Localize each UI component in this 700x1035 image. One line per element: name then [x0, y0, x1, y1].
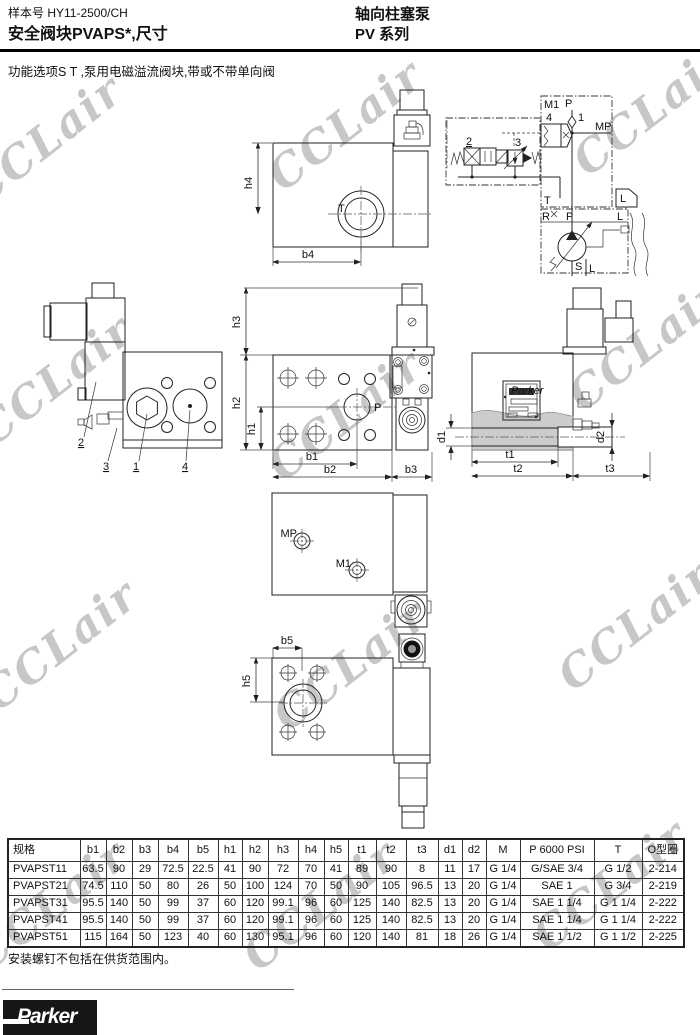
value-cell: 37 [188, 913, 218, 930]
table-header-cell: d1 [438, 839, 462, 862]
callout-2: 2 [78, 437, 84, 449]
value-cell: SAE 1 [520, 879, 594, 896]
circuit-label-3: 3 [515, 137, 521, 149]
value-cell: 140 [106, 913, 132, 930]
value-cell: G 1/4 [486, 879, 520, 896]
value-cell: 60 [324, 930, 348, 948]
value-cell: 82.5 [406, 913, 438, 930]
spec-cell: PVAPST11 [8, 862, 80, 879]
value-cell: 2-214 [642, 862, 684, 879]
table-row: PVAPST4195.51405099376012099.19660125140… [8, 913, 684, 930]
value-cell: 70 [298, 879, 324, 896]
dim-label-b1: b1 [306, 451, 318, 463]
value-cell: 125 [348, 896, 376, 913]
catalog-page: CCLair CCLair CCLair CCLair CCLair CCLai… [0, 0, 700, 1035]
circuit-label-S: S [575, 261, 582, 273]
table-header-cell: 规格 [8, 839, 80, 862]
value-cell: 50 [324, 879, 348, 896]
dim-label-h2: h2 [231, 397, 243, 409]
table-header-cell: b3 [132, 839, 158, 862]
circuit-label-1: 1 [578, 112, 584, 124]
value-cell: 26 [462, 930, 486, 948]
spec-cell: PVAPST21 [8, 879, 80, 896]
value-cell: 96 [298, 896, 324, 913]
port-label-M1: M1 [336, 558, 351, 570]
value-cell: 20 [462, 879, 486, 896]
value-cell: G 1/2 [594, 862, 642, 879]
value-cell: 50 [132, 930, 158, 948]
dim-label-b4: b4 [302, 249, 314, 261]
table-header-cell: t3 [406, 839, 438, 862]
table-header-cell: M [486, 839, 520, 862]
value-cell: SAE 1 1/4 [520, 913, 594, 930]
value-cell: 82.5 [406, 896, 438, 913]
table-row: PVAPST3195.51405099376012099.19660125140… [8, 896, 684, 913]
value-cell: G 1/4 [486, 913, 520, 930]
value-cell: 90 [106, 862, 132, 879]
value-cell: 89 [348, 862, 376, 879]
value-cell: 96 [298, 913, 324, 930]
series-name: PV 系列 [355, 23, 409, 44]
spec-cell: PVAPST41 [8, 913, 80, 930]
value-cell: 96.5 [406, 879, 438, 896]
value-cell: 140 [376, 930, 406, 948]
value-cell: G 1 1/4 [594, 913, 642, 930]
value-cell: G 1/4 [486, 930, 520, 948]
product-name: 轴向柱塞泵 [355, 3, 430, 24]
dim-label-t3: t3 [605, 463, 614, 475]
table-header-cell: T [594, 839, 642, 862]
value-cell: SAE 1 1/4 [520, 896, 594, 913]
table-header-cell: b5 [188, 839, 218, 862]
value-cell: 40 [188, 930, 218, 948]
drawing-side-section-view: Parker d1 d2 t [436, 288, 650, 481]
value-cell: 72.5 [158, 862, 188, 879]
value-cell: 110 [106, 879, 132, 896]
drawing-solenoid-side-view: 2 3 1 4 [44, 283, 222, 473]
value-cell: 74.5 [80, 879, 106, 896]
value-cell: 96 [298, 930, 324, 948]
callout-1: 1 [133, 461, 139, 473]
dim-label-h5: h5 [241, 675, 253, 687]
table-row: PVAPST1163.5902972.522.54190727041899081… [8, 862, 684, 879]
dim-label-b5: b5 [281, 635, 293, 647]
table-header-cell: h2 [242, 839, 268, 862]
value-cell: 123 [158, 930, 188, 948]
dim-label-t2: t2 [513, 463, 522, 475]
value-cell: 99.1 [268, 913, 298, 930]
table-row: PVAPST2174.51105080265010012470509010596… [8, 879, 684, 896]
value-cell: G 3/4 [594, 879, 642, 896]
value-cell: 50 [132, 913, 158, 930]
value-cell: 18 [438, 930, 462, 948]
value-cell: G 1 1/2 [594, 930, 642, 948]
table-header-cell: b1 [80, 839, 106, 862]
value-cell: 100 [242, 879, 268, 896]
table-header-cell: h1 [218, 839, 242, 862]
value-cell: 72 [268, 862, 298, 879]
value-cell: 95.1 [268, 930, 298, 948]
dim-label-h1: h1 [246, 423, 258, 435]
circuit-label-2: 2 [466, 136, 472, 148]
value-cell: 105 [376, 879, 406, 896]
value-cell: 20 [462, 913, 486, 930]
value-cell: 2-222 [642, 913, 684, 930]
dimension-table: 规格b1b2b3b4b5h1h2h3h4h5t1t2t3d1d2MP 6000 … [7, 838, 685, 948]
hydraulic-circuit-diagram: 2 3 M1 P 1 4 [446, 96, 648, 276]
header-rule [0, 49, 700, 52]
value-cell: 41 [324, 862, 348, 879]
value-cell: 2-219 [642, 879, 684, 896]
page-title: 安全阀块PVAPS*,尺寸 [8, 20, 168, 44]
table-header-cell: d2 [462, 839, 486, 862]
drawing-front-view: P h3 h2 h1 b1 b2 b3 [231, 284, 434, 482]
value-cell: 81 [406, 930, 438, 948]
table-header-cell: b4 [158, 839, 188, 862]
value-cell: 50 [132, 896, 158, 913]
value-cell: 140 [376, 896, 406, 913]
parker-logo: Parker [3, 1000, 97, 1035]
dim-label-h3: h3 [231, 316, 243, 328]
value-cell: 20 [462, 896, 486, 913]
value-cell: G 1 1/4 [594, 896, 642, 913]
value-cell: 124 [268, 879, 298, 896]
callout-4: 4 [182, 461, 188, 473]
drawing-block-top-view: T h4 b4 [243, 90, 447, 266]
value-cell: G/SAE 3/4 [520, 862, 594, 879]
value-cell: 125 [348, 913, 376, 930]
value-cell: 50 [218, 879, 242, 896]
value-cell: 120 [242, 896, 268, 913]
port-label-P: P [374, 402, 381, 414]
footer-divider [2, 989, 294, 990]
value-cell: 90 [348, 879, 376, 896]
port-label-T: T [338, 203, 345, 215]
value-cell: 120 [348, 930, 376, 948]
value-cell: G 1/4 [486, 862, 520, 879]
table-header-cell: P 6000 PSI [520, 839, 594, 862]
value-cell: 60 [324, 896, 348, 913]
value-cell: 164 [106, 930, 132, 948]
subtitle: 功能选项S T ,泵用电磁溢流阀块,带或不带单向阀 [8, 61, 275, 80]
value-cell: 50 [132, 879, 158, 896]
value-cell: 22.5 [188, 862, 218, 879]
value-cell: SAE 1 1/2 [520, 930, 594, 948]
spec-cell: PVAPST31 [8, 896, 80, 913]
table-row: PVAPST5111516450123406013095.19660120140… [8, 930, 684, 948]
value-cell: 99.1 [268, 896, 298, 913]
dim-label-d1: d1 [436, 431, 448, 443]
value-cell: 13 [438, 913, 462, 930]
value-cell: 29 [132, 862, 158, 879]
value-cell: 63.5 [80, 862, 106, 879]
value-cell: 90 [242, 862, 268, 879]
value-cell: 13 [438, 896, 462, 913]
value-cell: 60 [324, 913, 348, 930]
value-cell: 130 [242, 930, 268, 948]
drawing-bottom-view: b5 h5 [241, 635, 430, 828]
value-cell: 26 [188, 879, 218, 896]
value-cell: 95.5 [80, 896, 106, 913]
drawing-gauge-ports-view: MP M1 [272, 493, 431, 668]
nameplate-text: Parker [511, 385, 545, 397]
value-cell: 80 [158, 879, 188, 896]
technical-drawings: T h4 b4 2 [0, 80, 700, 840]
value-cell: 99 [158, 913, 188, 930]
value-cell: 90 [376, 862, 406, 879]
value-cell: 2-222 [642, 896, 684, 913]
value-cell: 95.5 [80, 913, 106, 930]
port-label-MP: MP [281, 528, 298, 540]
callout-3: 3 [103, 461, 109, 473]
circuit-label-L3: L [589, 263, 595, 275]
table-header-cell: O型圈 [642, 839, 684, 862]
value-cell: 99 [158, 896, 188, 913]
value-cell: 41 [218, 862, 242, 879]
value-cell: 120 [242, 913, 268, 930]
circuit-label-L: L [620, 193, 626, 205]
dim-label-d2: d2 [595, 431, 607, 443]
dim-label-h4: h4 [243, 177, 255, 189]
circuit-label-L2: L [617, 211, 623, 223]
table-header-row: 规格b1b2b3b4b5h1h2h3h4h5t1t2t3d1d2MP 6000 … [8, 839, 684, 862]
value-cell: 60 [218, 930, 242, 948]
value-cell: G 1/4 [486, 896, 520, 913]
circuit-label-P: P [565, 98, 572, 110]
value-cell: 13 [438, 879, 462, 896]
value-cell: 8 [406, 862, 438, 879]
table-header-cell: h4 [298, 839, 324, 862]
parker-logo-text: Parker [17, 1005, 76, 1029]
value-cell: 115 [80, 930, 106, 948]
value-cell: 60 [218, 896, 242, 913]
table-header-cell: t2 [376, 839, 406, 862]
circuit-label-T: T [544, 195, 551, 207]
table-header-cell: b2 [106, 839, 132, 862]
circuit-label-R: R [542, 211, 550, 223]
value-cell: 11 [438, 862, 462, 879]
value-cell: 140 [106, 896, 132, 913]
circuit-label-M1: M1 [544, 99, 559, 111]
table-header-cell: h5 [324, 839, 348, 862]
value-cell: 60 [218, 913, 242, 930]
value-cell: 70 [298, 862, 324, 879]
value-cell: 2-225 [642, 930, 684, 948]
dim-label-b2: b2 [324, 464, 336, 476]
value-cell: 17 [462, 862, 486, 879]
circuit-label-4: 4 [546, 112, 552, 124]
spec-cell: PVAPST51 [8, 930, 80, 948]
footnote: 安装螺钉不包括在供货范围内。 [8, 950, 176, 967]
table-header-cell: h3 [268, 839, 298, 862]
doc-number: 样本号 HY11-2500/CH [8, 4, 128, 21]
dim-label-t1: t1 [505, 449, 514, 461]
value-cell: 37 [188, 896, 218, 913]
dim-label-b3: b3 [405, 464, 417, 476]
table-header-cell: t1 [348, 839, 376, 862]
circuit-label-MP: MP [595, 121, 612, 133]
value-cell: 140 [376, 913, 406, 930]
